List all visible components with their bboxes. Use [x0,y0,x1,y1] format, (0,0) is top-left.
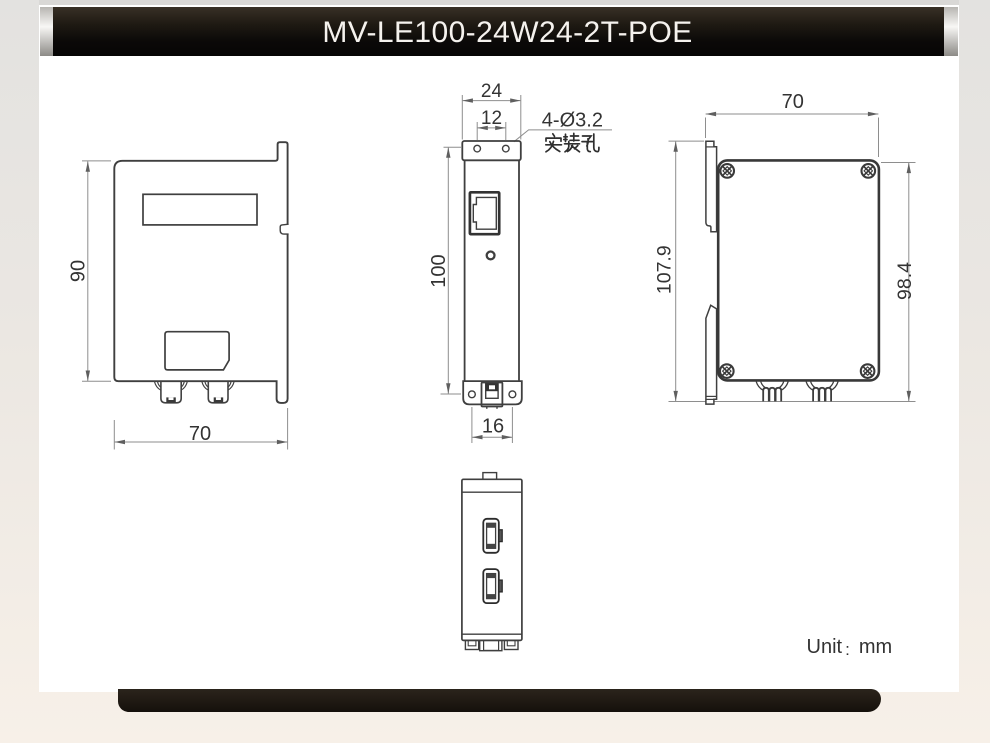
svg-text:90: 90 [68,260,90,282]
svg-text:4-Ø3.2: 4-Ø3.2 [542,110,603,132]
svg-text:70: 70 [782,91,804,113]
svg-text:98.4: 98.4 [894,262,916,300]
svg-text:107.9: 107.9 [653,245,675,294]
svg-text:100: 100 [428,254,450,287]
svg-text:12: 12 [481,108,502,129]
svg-text:24: 24 [481,81,503,102]
svg-text:70: 70 [189,423,211,445]
svg-text:Unit:mm: Unit:mm [807,636,893,659]
svg-text:16: 16 [482,415,504,437]
